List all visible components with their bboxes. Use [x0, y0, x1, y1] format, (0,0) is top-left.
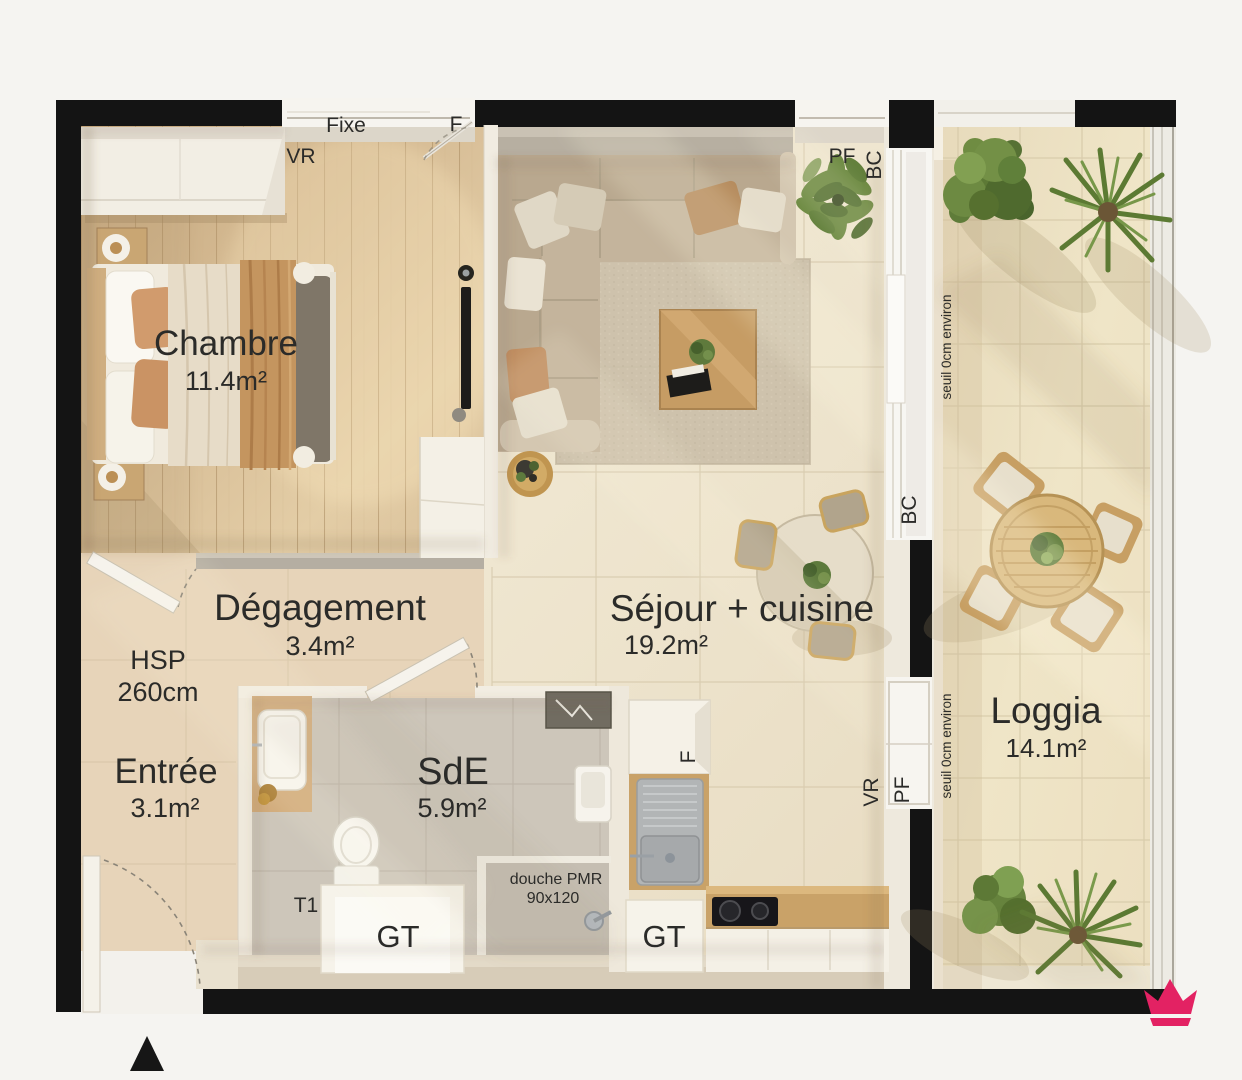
svg-text:Dégagement: Dégagement [214, 587, 427, 628]
svg-text:BC: BC [898, 495, 921, 524]
svg-text:90x120: 90x120 [527, 890, 580, 907]
svg-text:Entrée: Entrée [114, 752, 217, 791]
svg-text:Séjour + cuisine: Séjour + cuisine [610, 588, 874, 629]
svg-text:seuil 0cm environ: seuil 0cm environ [939, 693, 954, 798]
svg-text:3.1m²: 3.1m² [130, 793, 199, 823]
svg-text:GT: GT [642, 919, 685, 954]
svg-text:19.2m²: 19.2m² [624, 630, 708, 660]
svg-text:Fixe: Fixe [326, 114, 366, 137]
svg-text:F: F [450, 113, 463, 136]
svg-text:douche PMR: douche PMR [510, 871, 603, 888]
svg-text:3.4m²: 3.4m² [285, 631, 354, 661]
svg-text:F: F [677, 751, 700, 764]
svg-text:seuil 0cm environ: seuil 0cm environ [939, 294, 954, 399]
svg-text:PF: PF [891, 777, 914, 804]
svg-text:Loggia: Loggia [990, 690, 1102, 731]
svg-text:SdE: SdE [417, 751, 489, 793]
svg-text:5.9m²: 5.9m² [417, 793, 486, 823]
svg-text:T1: T1 [294, 894, 319, 917]
svg-text:VR: VR [860, 777, 883, 806]
svg-text:VR: VR [286, 145, 315, 168]
svg-text:GT: GT [376, 919, 419, 954]
svg-text:Chambre: Chambre [154, 324, 298, 363]
svg-text:PF: PF [829, 145, 856, 168]
svg-text:260cm: 260cm [117, 677, 198, 707]
svg-text:11.4m²: 11.4m² [185, 366, 267, 396]
svg-text:BC: BC [863, 150, 886, 179]
svg-text:HSP: HSP [130, 645, 186, 675]
svg-text:14.1m²: 14.1m² [1006, 733, 1087, 763]
